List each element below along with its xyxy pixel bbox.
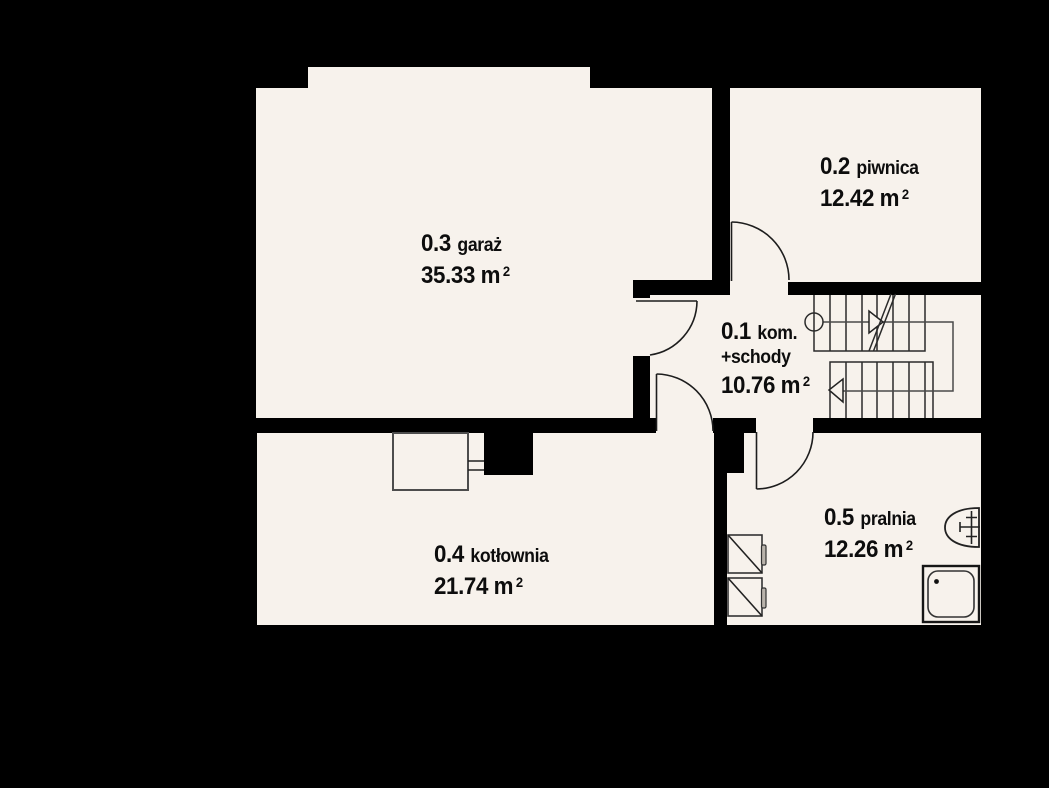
shower-drain [934,579,939,584]
room-area-sup: 2 [503,263,510,279]
room-label-area: 21.74m2 [434,570,549,602]
boiler-body [393,433,468,490]
room-area: 12.26 [824,536,878,563]
room-area-unit: m [884,536,903,563]
room-name: kom. [757,323,797,344]
room-area-unit: m [494,573,513,600]
room-area: 21.74 [434,573,488,600]
room-area-sup: 2 [906,537,913,553]
room-label-line2: +schody [721,346,810,370]
room-label-kom-schody: 0.1kom. +schody 10.76m2 [721,320,810,400]
room-area: 35.33 [421,262,475,289]
doorway-pralnia [756,418,813,433]
room-label-line1: 0.4kotłownia [434,542,549,570]
room-number: 0.5 [824,504,854,531]
room-label-piwnica: 0.2piwnica 12.42m2 [820,154,919,214]
room-number: 0.1 [721,318,751,345]
room-area-unit: m [481,262,500,289]
room-area-sup: 2 [803,373,810,389]
room-label-area: 35.33m2 [421,259,510,291]
room-label-area: 10.76m2 [721,370,810,400]
room-name: piwnica [856,158,918,179]
doorway-garage-hall [633,298,650,356]
room-area: 10.76 [721,372,775,399]
room-label-line1: 0.5pralnia [824,505,916,533]
room-number: 0.4 [434,541,464,568]
washing-machine-1 [728,535,766,573]
shower-tray [923,566,979,622]
room-label-line1: 0.1kom. [721,320,810,346]
doorway-piwnica [730,282,788,295]
room-label-area: 12.42m2 [820,182,919,214]
room-area-unit: m [781,372,800,399]
washing-machine-latch [762,588,767,608]
room-label-line1: 0.3garaż [421,231,510,259]
room-label-kotlownia: 0.4kotłownia 21.74m2 [434,542,549,602]
washing-machine-2 [728,578,766,616]
room-name-line2: +schody [721,347,791,368]
duct-block-pralnia [727,433,744,473]
doorway-kotlownia [656,418,713,433]
room-label-area: 12.26m2 [824,533,916,565]
washing-machine-latch [762,545,767,565]
floorplan-canvas: 0.1kom. +schody 10.76m2 0.2piwnica 12.42… [0,0,1049,788]
room-name: garaż [457,235,501,256]
room-number: 0.2 [820,153,850,180]
room-area-unit: m [880,185,899,212]
room-area-sup: 2 [902,186,909,202]
room-label-pralnia: 0.5pralnia 12.26m2 [824,505,916,565]
room-name: pralnia [860,509,915,530]
room-name: kotłownia [470,546,548,567]
room-label-garaz: 0.3garaż 35.33m2 [421,231,510,291]
room-number: 0.3 [421,230,451,257]
chimney-block-kotlownia [484,433,533,475]
floorplan-drawing [0,0,1049,788]
room-area: 12.42 [820,185,874,212]
room-area-sup: 2 [516,574,523,590]
room-label-line1: 0.2piwnica [820,154,919,182]
